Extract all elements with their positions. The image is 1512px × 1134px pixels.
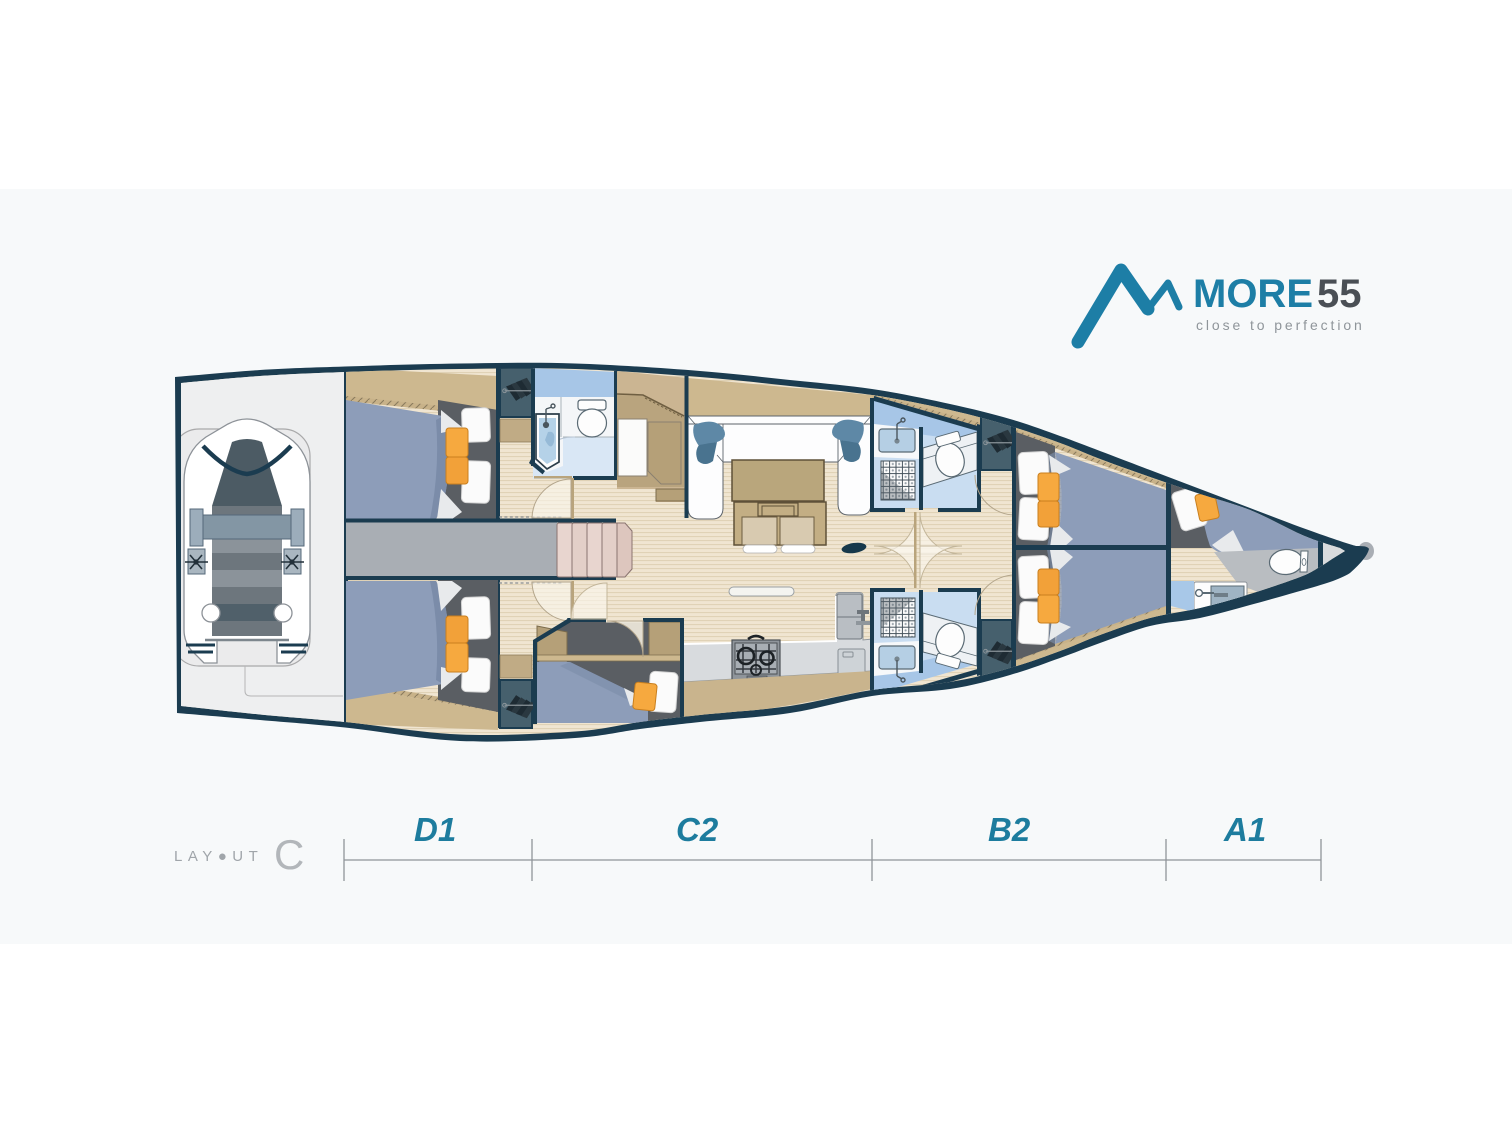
svg-text:A1: A1	[1223, 811, 1266, 848]
svg-text:close to perfection: close to perfection	[1196, 317, 1365, 333]
svg-text:D1: D1	[414, 811, 456, 848]
svg-text:C2: C2	[676, 811, 719, 848]
svg-text:C: C	[274, 831, 304, 878]
svg-text:B2: B2	[988, 811, 1031, 848]
svg-text:LAY●UT: LAY●UT	[174, 848, 263, 865]
svg-text:MORE: MORE	[1193, 272, 1313, 316]
svg-text:55: 55	[1317, 272, 1362, 316]
